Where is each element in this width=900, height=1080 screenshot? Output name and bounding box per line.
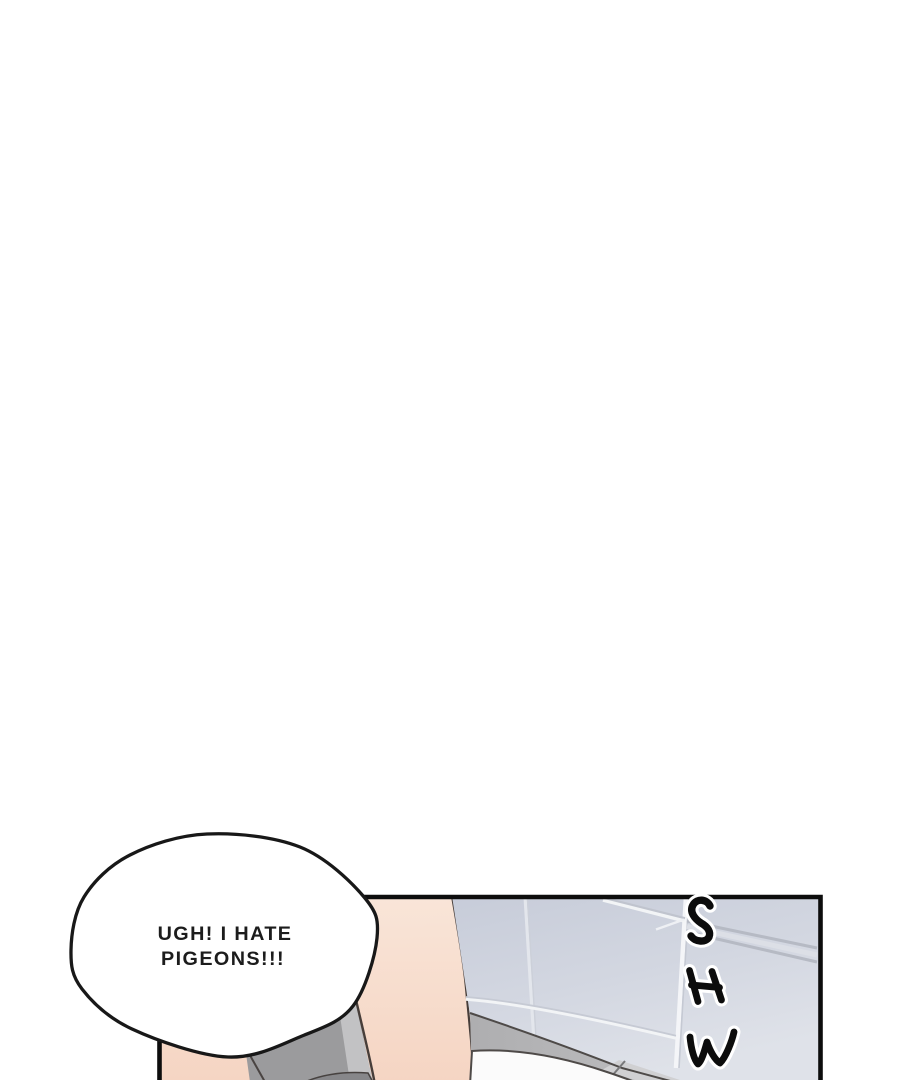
svg-text:UGH! I HATE: UGH! I HATE bbox=[158, 923, 293, 945]
svg-text:PIGEONS!!!: PIGEONS!!! bbox=[161, 948, 285, 970]
